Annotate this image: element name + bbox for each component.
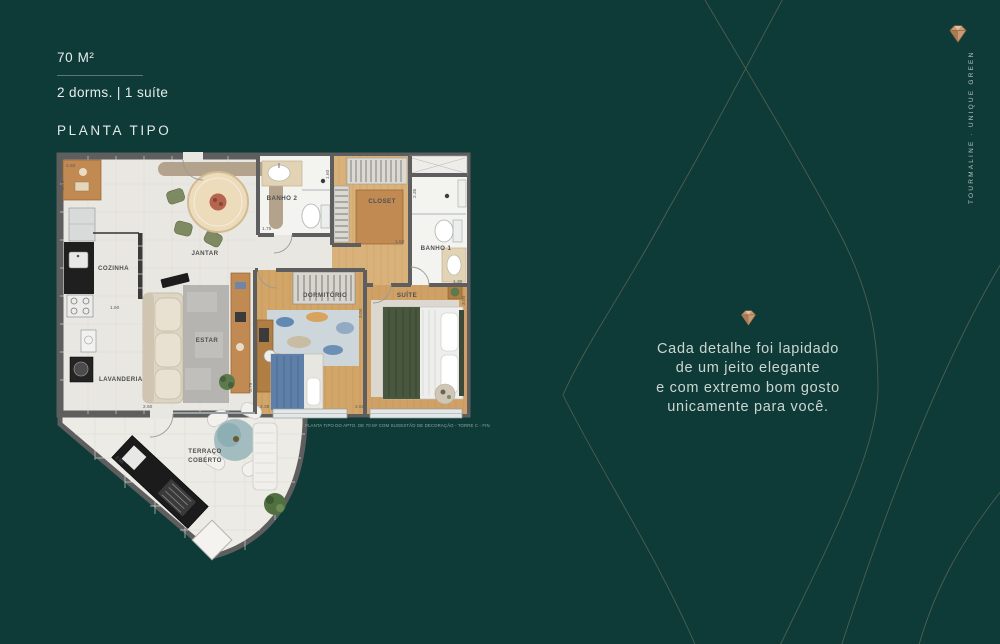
decorative-curve <box>916 490 1000 644</box>
quote-line: de um jeito elegante <box>613 359 883 379</box>
terrace-plant <box>264 493 286 515</box>
gem-icon <box>613 310 883 333</box>
toilet <box>435 220 462 242</box>
plan-caption: PLANTA TIPO DO APTO. DE 70 M² COM SUGEST… <box>305 423 490 428</box>
sofa-cushions <box>155 298 181 399</box>
apartment-config: 2 dorms. | 1 suíte <box>57 85 168 100</box>
dim-banho2-h: 1.60 <box>325 169 331 179</box>
sideboard-item <box>235 312 246 322</box>
header: 70 M² 2 dorms. | 1 suíte <box>57 50 168 100</box>
suite-round-rug <box>435 384 455 404</box>
washer-drum <box>74 362 88 376</box>
bed-suite <box>383 307 464 399</box>
counter-item <box>75 182 89 191</box>
apartment-area: 70 M² <box>57 50 168 65</box>
dim-cozinha: 1.60 <box>110 305 120 311</box>
label-terraco-1: TERRAÇO <box>188 448 221 455</box>
dim-suite-h: 3.00 <box>461 295 467 305</box>
glass-partition <box>138 233 143 299</box>
plant <box>451 288 460 297</box>
label-banho1: BANHO 1 <box>421 245 452 252</box>
gem-icon <box>947 25 969 48</box>
kitchen-sink <box>69 252 88 268</box>
label-lavanderia: LAVANDERIA <box>99 376 143 383</box>
label-estar: ESTAR <box>196 337 219 344</box>
dim-estar-w: 2.60 <box>143 404 153 410</box>
banho1-panel <box>458 180 466 207</box>
shower-head <box>445 194 449 198</box>
quote-line: Cada detalhe foi lapidado <box>613 340 883 360</box>
toilet <box>302 204 330 228</box>
dim-dorm-w1: 2.38 <box>260 404 270 410</box>
bed-dormitorio <box>271 354 323 410</box>
plant <box>219 374 235 390</box>
shower-head <box>321 179 325 183</box>
table-item <box>233 436 239 442</box>
dim-left-wall: 2.70 <box>60 180 66 190</box>
label-suite: SUÍTE <box>397 291 417 299</box>
divider-line <box>57 75 143 76</box>
banho1-sink <box>447 255 461 275</box>
sideboard-item <box>236 343 244 351</box>
laundry-sink <box>81 330 96 352</box>
fridge <box>69 208 95 241</box>
floor-plan: COZINHA JANTAR ESTAR LAVANDERIA BANHO 2 … <box>55 152 490 562</box>
desk-item <box>259 328 269 342</box>
terrace-opening <box>150 409 173 419</box>
label-dormitorio: DORMITÓRIO <box>303 291 347 299</box>
quote-line: unicamente para você. <box>613 398 883 418</box>
dim-counter: 4.50 <box>66 163 76 169</box>
label-banho2: BANHO 2 <box>267 195 298 202</box>
dim-banho1-h: 2.35 <box>412 188 418 198</box>
table-centerpiece <box>210 194 227 211</box>
label-cozinha: COZINHA <box>98 265 129 272</box>
sideboard-item <box>235 282 246 289</box>
stove <box>67 295 93 317</box>
quote-line: e com extremo bom gosto <box>613 379 883 399</box>
label-jantar: JANTAR <box>191 250 218 257</box>
quote-block: Cada detalhe foi lapidado de um jeito el… <box>613 310 883 418</box>
sideboard <box>231 273 250 393</box>
dim-closet: 1.52 <box>395 239 405 245</box>
dim-banho2-w: 1.75 <box>262 226 272 232</box>
brand-vertical-text: TOURMALINE · UNIQUE GREEN <box>968 34 975 204</box>
faucet <box>77 255 80 258</box>
dim-dorm-w2: 2.62 <box>355 404 365 410</box>
dim-dorm-h: 3.04 <box>358 308 364 318</box>
label-terraco-2: COBERTO <box>188 457 222 464</box>
counter-item <box>79 168 87 176</box>
dim-estar-h: 3.79 <box>248 382 254 392</box>
sofa-back <box>143 293 154 403</box>
page-title: PLANTA TIPO <box>57 123 171 138</box>
dim-banho1-w: 1.30 <box>453 279 463 285</box>
entry-opening <box>183 152 203 161</box>
label-closet: CLOSET <box>368 198 396 205</box>
